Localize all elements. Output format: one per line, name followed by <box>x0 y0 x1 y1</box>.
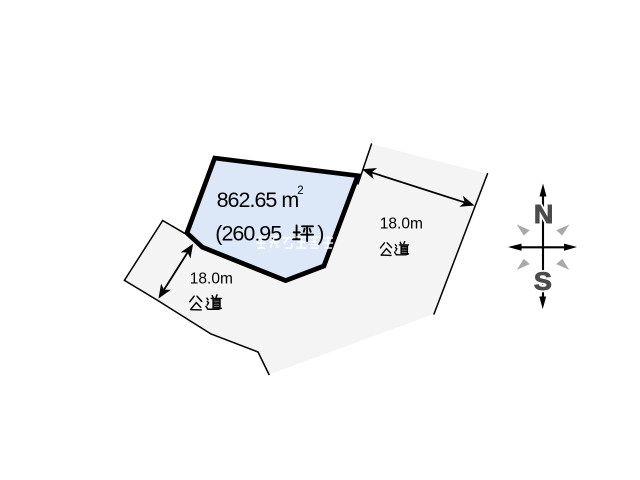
svg-text:18.0m: 18.0m <box>190 271 233 288</box>
svg-text:862.65 m: 862.65 m <box>217 188 299 212</box>
svg-text:2: 2 <box>297 185 303 197</box>
svg-text:S: S <box>534 269 552 296</box>
svg-text:18.0m: 18.0m <box>380 216 423 233</box>
svg-text:N: N <box>534 199 554 229</box>
